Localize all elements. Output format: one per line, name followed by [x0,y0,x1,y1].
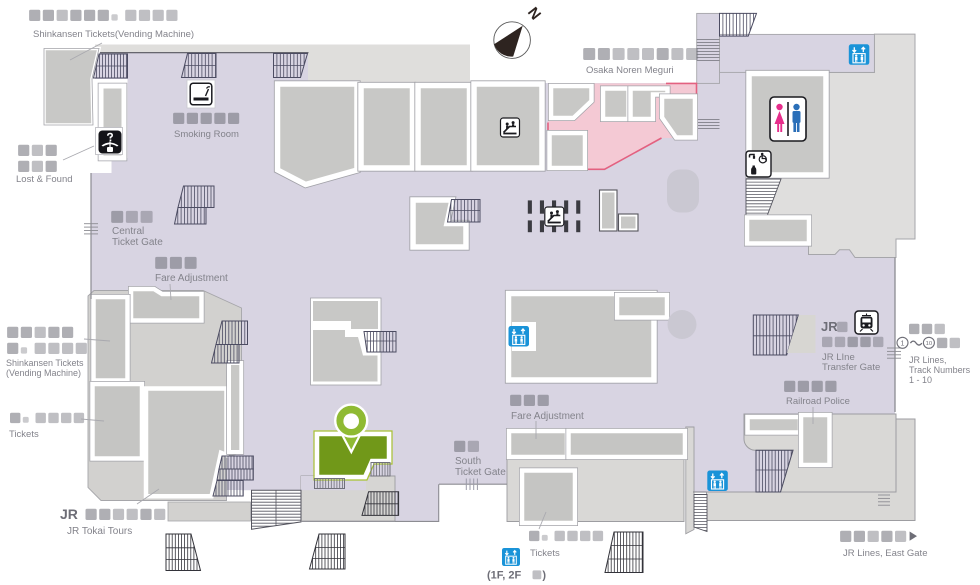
svg-text:Smoking Room: Smoking Room [174,129,239,140]
svg-text:JR Lines,: JR Lines, [909,355,947,365]
svg-text:JR Tokai Tours: JR Tokai Tours [67,526,132,537]
svg-text:1: 1 [901,338,905,347]
svg-text:Ticket Gate: Ticket Gate [112,237,163,248]
svg-text:10: 10 [926,341,933,347]
svg-text:Shinkansen Tickets(Vending Mac: Shinkansen Tickets(Vending Machine) [33,29,194,40]
svg-text:(Vending Machine): (Vending Machine) [6,368,81,378]
svg-text:Lost & Found: Lost & Found [16,174,73,185]
svg-text:(1F, 2F: (1F, 2F [487,570,522,582]
svg-text:Central: Central [112,226,144,237]
svg-text:JR: JR [821,319,838,334]
svg-text:Shinkansen Tickets: Shinkansen Tickets [6,358,84,368]
svg-text:Tickets: Tickets [9,429,39,440]
svg-text:): ) [542,570,546,582]
svg-text:Fare Adjustment: Fare Adjustment [511,411,584,422]
svg-text:Tickets: Tickets [530,548,560,559]
svg-text:1 - 10: 1 - 10 [909,375,932,385]
svg-text:Ticket Gate: Ticket Gate [455,467,506,478]
svg-text:Osaka Noren Meguri: Osaka Noren Meguri [586,65,674,76]
svg-text:Track Numbers: Track Numbers [909,365,971,375]
svg-text:South: South [455,456,481,467]
svg-text:N: N [524,4,544,23]
svg-text:Fare Adjustment: Fare Adjustment [155,273,228,284]
svg-text:JR: JR [60,506,78,522]
svg-text:Railroad Police: Railroad Police [786,396,850,407]
svg-text:JR Lines, East Gate: JR Lines, East Gate [843,548,927,559]
svg-text:Transfer Gate: Transfer Gate [822,362,880,373]
